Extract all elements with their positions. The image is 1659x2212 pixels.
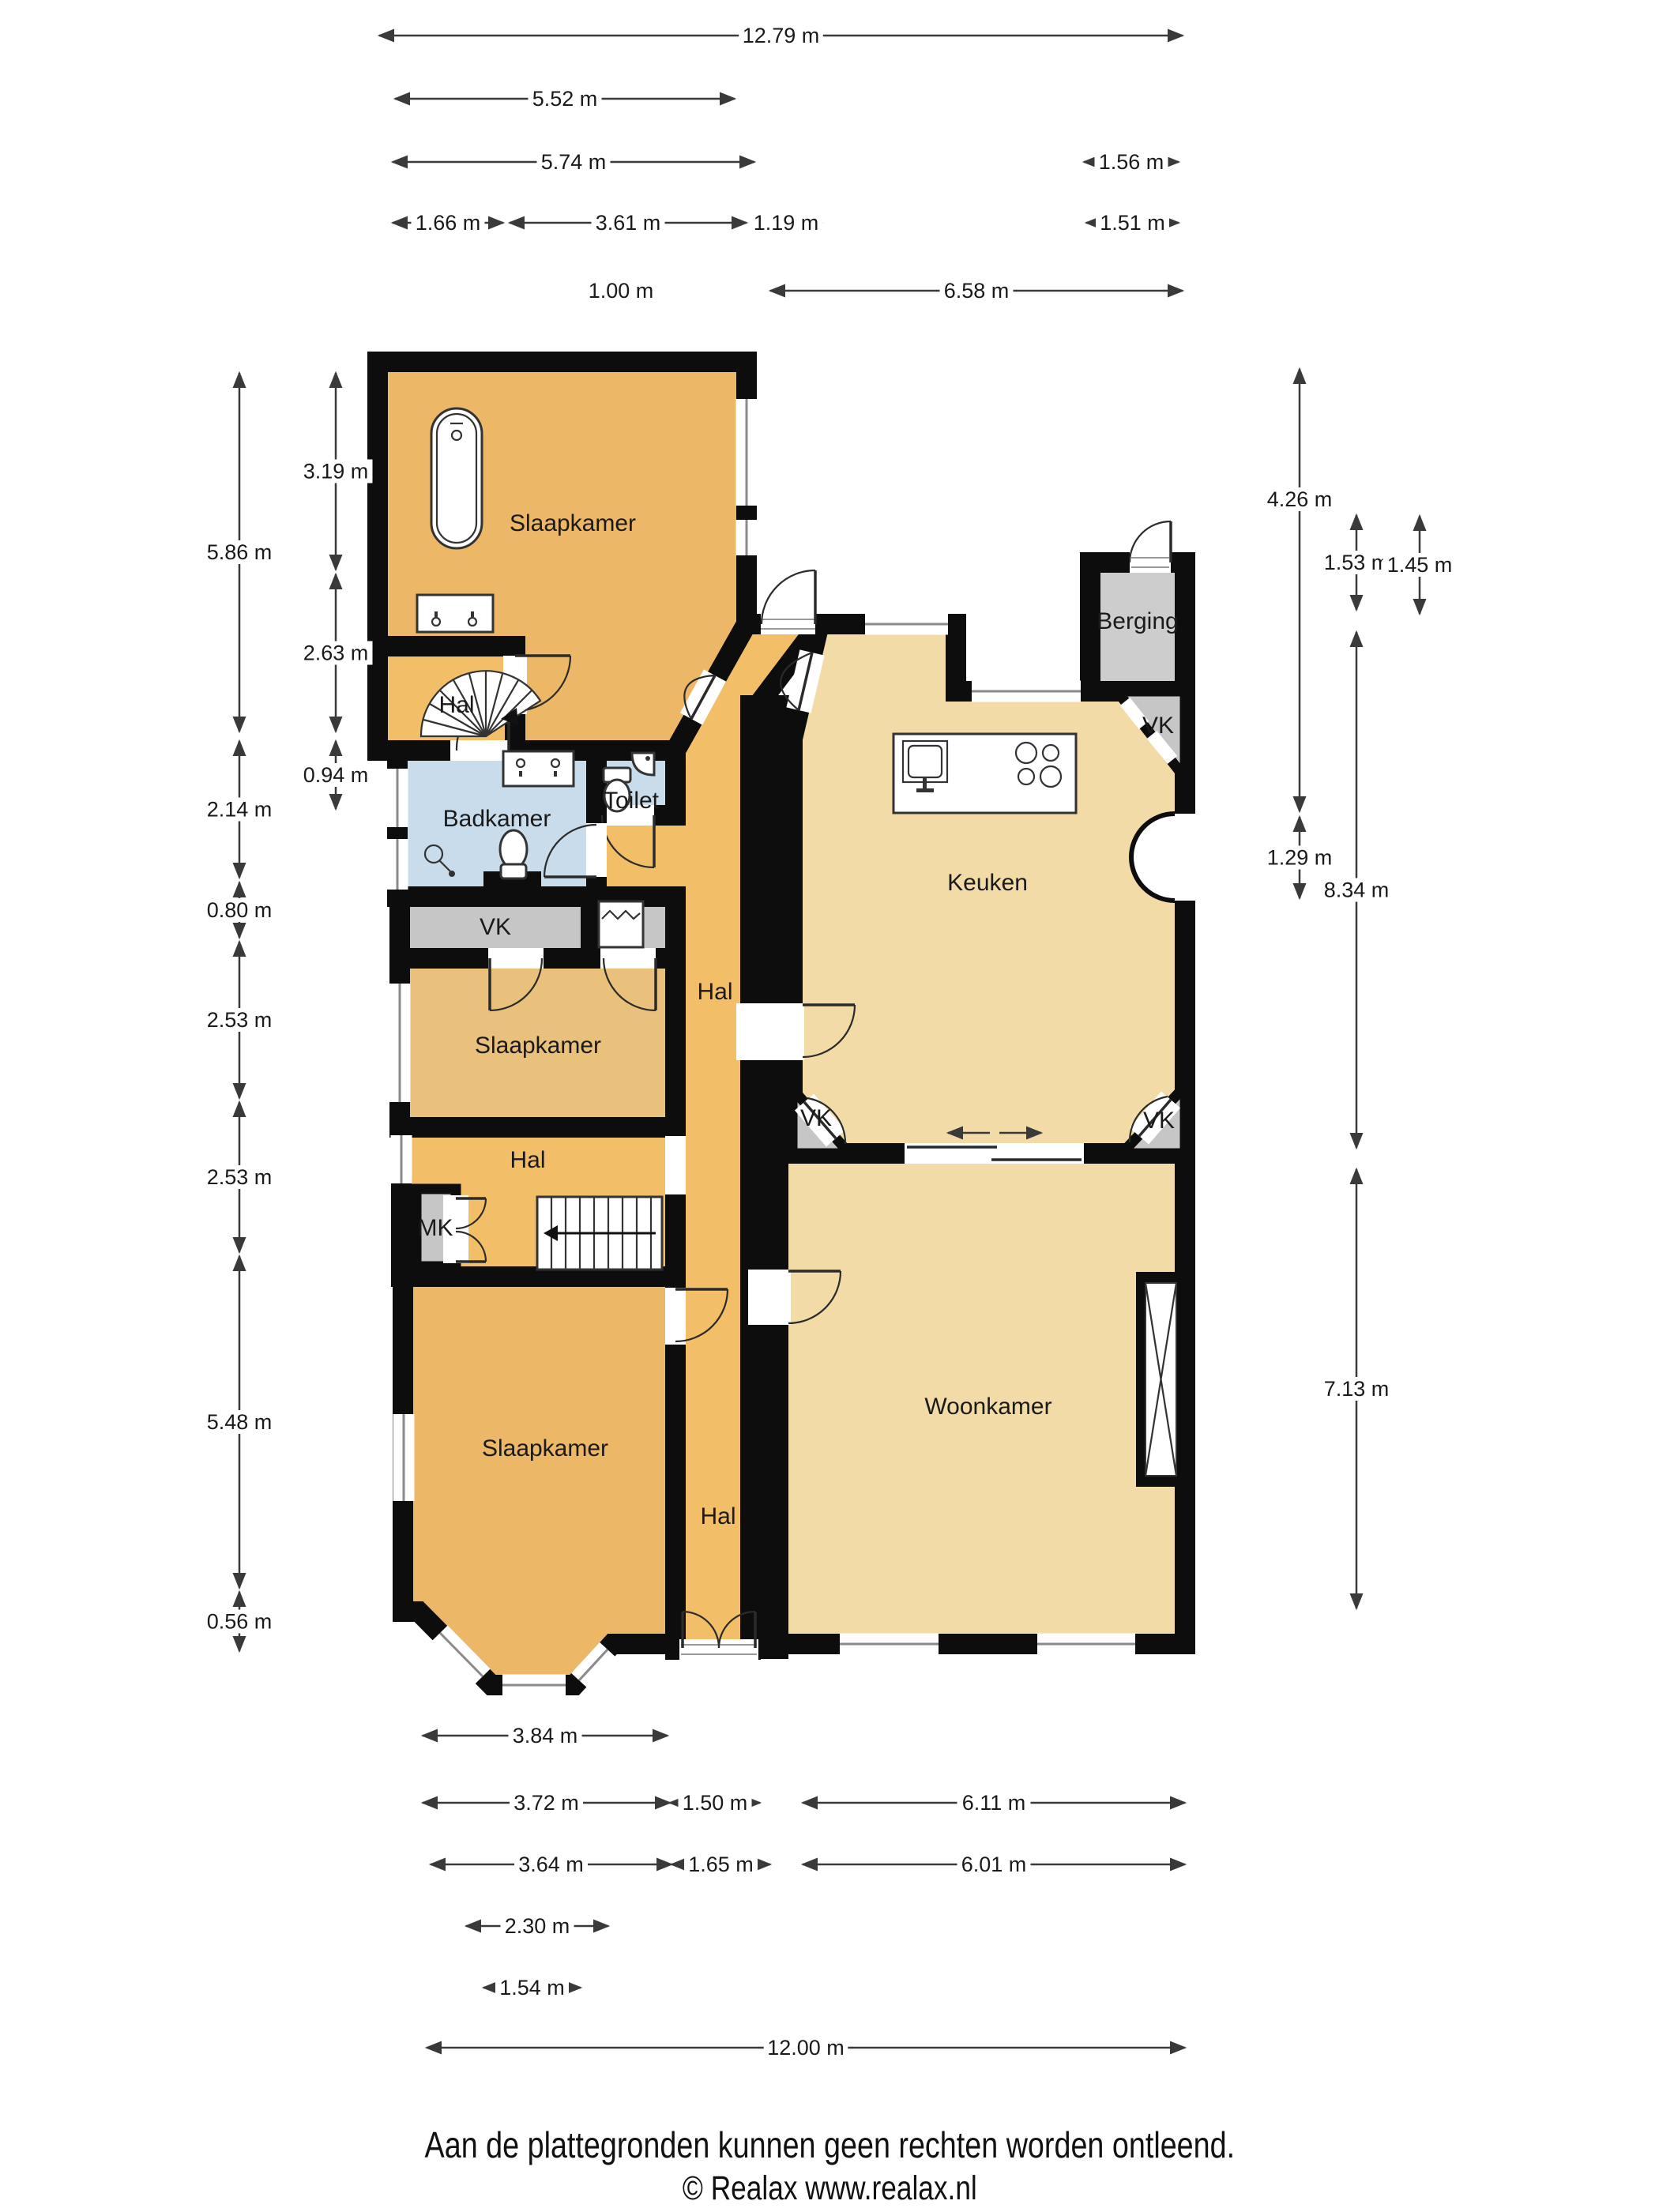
dimension-label: 5.48 m xyxy=(207,1410,273,1434)
dimension-label: 5.52 m xyxy=(532,87,598,111)
dimension-label: 1.66 m xyxy=(416,211,481,235)
footer-disclaimer: Aan de plattegronden kunnen geen rechten… xyxy=(0,2124,1659,2166)
x-window-icon xyxy=(1136,1272,1195,1487)
dimension-label: 2.53 m xyxy=(207,1008,273,1032)
dimension-label: 1.00 m xyxy=(589,279,654,303)
room-label-keuken: Keuken xyxy=(947,870,1028,896)
dimension-label: 1.51 m xyxy=(1100,211,1165,235)
dimension: 5.48 m xyxy=(203,1256,276,1588)
dimension-label: 0.94 m xyxy=(303,763,369,787)
dimension-label: 6.01 m xyxy=(961,1853,1027,1876)
dimension: 3.72 m xyxy=(423,1791,670,1815)
dimension: 0.94 m xyxy=(299,741,373,809)
dimension: 2.53 m xyxy=(203,1102,276,1252)
dimension-label: 5.86 m xyxy=(207,540,273,564)
dimension-label: 3.84 m xyxy=(513,1724,578,1747)
room-label-woonkamer: Woonkamer xyxy=(924,1394,1051,1420)
curved-wall-notch xyxy=(1131,814,1197,901)
dimension: 5.52 m xyxy=(395,87,735,111)
room-label-hal-top: Hal xyxy=(438,692,474,718)
dimension-label: 1.56 m xyxy=(1099,150,1164,174)
dimension: 2.30 m xyxy=(466,1914,608,1938)
dimension: 1.65 m xyxy=(671,1853,770,1876)
dimension-label: 3.72 m xyxy=(513,1791,579,1815)
double-sink-icon xyxy=(417,595,493,632)
double-sink-icon xyxy=(503,751,574,786)
dimension-label: 3.61 m xyxy=(596,211,661,235)
dimension: 1.51 m xyxy=(1086,211,1179,235)
dimension-label: 8.34 m xyxy=(1324,878,1390,902)
dimension-label: 1.45 m xyxy=(1387,553,1453,577)
dimension: 7.13 m xyxy=(1320,1169,1394,1608)
dimension: 1.54 m xyxy=(483,1976,581,1999)
dimension: 3.84 m xyxy=(423,1724,668,1747)
dimension: 1.00 m xyxy=(585,279,658,303)
door-arc-icon xyxy=(1130,521,1171,573)
dimension-label: 2.30 m xyxy=(505,1914,570,1938)
footer-copyright: © Realax www.realax.nl xyxy=(0,2169,1659,2208)
dimension: 6.11 m xyxy=(803,1791,1185,1815)
room-slaapkamer-bottom xyxy=(403,1277,675,1685)
opening xyxy=(665,1136,686,1194)
straight-stairs-icon xyxy=(537,1197,662,1270)
dimension-label: 0.56 m xyxy=(207,1610,273,1634)
door-arc-icon xyxy=(761,570,815,634)
dimension-label: 1.19 m xyxy=(754,211,819,235)
room-label-vk-bottom-left: VK xyxy=(800,1105,832,1131)
dimension: 2.14 m xyxy=(203,741,276,878)
dimension: 2.63 m xyxy=(299,574,373,732)
room-label-slaapkamer-bottom: Slaapkamer xyxy=(482,1435,608,1461)
room-label-vk-top-right: VK xyxy=(1142,713,1174,739)
room-label-badkamer: Badkamer xyxy=(443,806,551,832)
dimension: 8.34 m xyxy=(1320,632,1394,1148)
dimension-label: 6.11 m xyxy=(962,1791,1026,1815)
dimension: 5.74 m xyxy=(393,150,754,174)
dimension-label: 0.80 m xyxy=(207,898,273,922)
room-label-mk: MK xyxy=(418,1215,453,1241)
room-label-hal-middle: Hal xyxy=(510,1147,545,1173)
dimension: 1.50 m xyxy=(670,1791,760,1815)
dimension-label: 7.13 m xyxy=(1324,1377,1390,1401)
dimension-label: 3.64 m xyxy=(518,1853,584,1876)
dimension-label: 12.00 m xyxy=(767,2036,845,2060)
room-label-slaapkamer-top: Slaapkamer xyxy=(510,510,636,536)
washing-machine-icon xyxy=(599,901,643,947)
dimension-label: 5.74 m xyxy=(541,150,607,174)
dimension: 6.58 m xyxy=(770,279,1183,303)
dimension: 0.56 m xyxy=(203,1592,276,1651)
dimension-label: 6.58 m xyxy=(944,279,1010,303)
dimension-label: 12.79 m xyxy=(743,24,820,47)
footer: Aan de plattegronden kunnen geen rechten… xyxy=(0,2124,1659,2208)
room-label-hal-main: Hal xyxy=(697,979,732,1005)
bathtub-icon xyxy=(431,408,482,548)
dimension: 1.45 m xyxy=(1383,516,1457,614)
dimension: 12.79 m xyxy=(379,24,1183,47)
kitchen-island xyxy=(893,734,1076,813)
floorplan-page: { "footer": { "disclaimer": "Aan de plat… xyxy=(0,0,1659,2212)
wall-filler-corridor-woonkamer xyxy=(750,1153,788,1659)
room-label-hal-bottom: Hal xyxy=(700,1503,735,1529)
dimension: 4.26 m xyxy=(1263,369,1337,811)
dimension-label: 2.63 m xyxy=(303,641,369,665)
dimension: 3.61 m xyxy=(510,211,747,235)
dimension: 1.56 m xyxy=(1084,150,1179,174)
dimension: 5.86 m xyxy=(203,373,276,732)
dimension: 2.53 m xyxy=(203,942,276,1098)
dimension-label: 4.26 m xyxy=(1267,487,1333,511)
dimension-label: 1.53 m xyxy=(1324,551,1390,574)
dimension-label: 2.53 m xyxy=(207,1165,273,1189)
dimension: 12.00 m xyxy=(427,2036,1185,2060)
dimension: 3.19 m xyxy=(299,373,373,570)
dimension: 6.01 m xyxy=(803,1853,1185,1876)
dimension: 3.64 m xyxy=(431,1853,671,1876)
dimension: 1.19 m xyxy=(750,211,823,235)
dimension: 1.66 m xyxy=(393,211,503,235)
floor-plan-svg: SlaapkamerHalBadkamerToiletVKHalKeukenBe… xyxy=(0,0,1659,2212)
dimension-label: 1.29 m xyxy=(1267,846,1333,870)
dimension-label: 1.50 m xyxy=(683,1791,748,1815)
room-label-slaapkamer-middle: Slaapkamer xyxy=(475,1033,601,1059)
dimension-label: 1.65 m xyxy=(688,1853,754,1876)
room-label-toilet: Toilet xyxy=(604,788,660,814)
room-label-vk-middle: VK xyxy=(480,914,511,940)
room-label-berging: Berging xyxy=(1097,608,1178,634)
dimension-label: 2.14 m xyxy=(207,798,273,822)
dimension: 1.53 m xyxy=(1320,515,1394,610)
dimension: 0.80 m xyxy=(203,882,276,938)
room-label-vk-bottom-right: VK xyxy=(1143,1108,1175,1134)
dimension-label: 3.19 m xyxy=(303,460,369,483)
dimension-label: 1.54 m xyxy=(499,1976,565,1999)
